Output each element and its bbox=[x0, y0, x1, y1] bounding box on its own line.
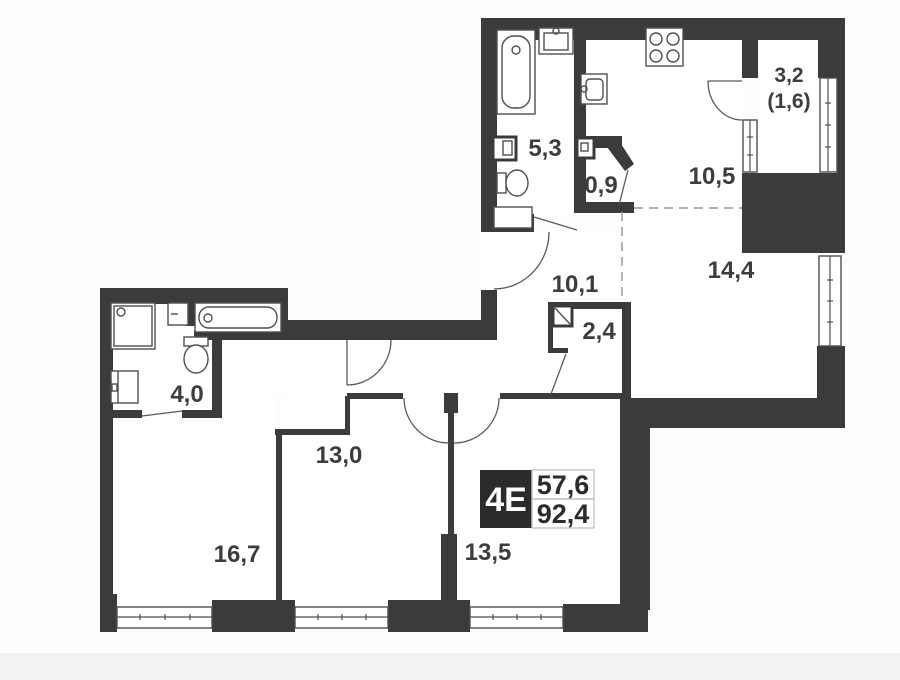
room-area-label-kitchen: 10,5 bbox=[689, 163, 736, 190]
wall bbox=[100, 288, 288, 304]
room-area-label-balcony: 3,2 bbox=[774, 64, 803, 87]
wall bbox=[100, 594, 117, 632]
wall bbox=[388, 600, 470, 632]
toilet-icon bbox=[184, 337, 208, 373]
wall bbox=[548, 348, 568, 353]
vent-shaft-icon bbox=[553, 306, 572, 326]
wall bbox=[275, 429, 350, 435]
wall bbox=[620, 398, 650, 610]
badge-upper-value: 57,6 bbox=[537, 470, 590, 500]
wall bbox=[622, 302, 631, 398]
window bbox=[820, 78, 837, 172]
washbasin-icon bbox=[168, 303, 188, 325]
wall bbox=[212, 340, 222, 418]
room-area-label-closet: 2,4 bbox=[582, 318, 616, 345]
wall bbox=[441, 534, 457, 604]
window bbox=[743, 120, 757, 172]
stove-icon bbox=[646, 28, 683, 66]
wall bbox=[481, 18, 497, 232]
vent-shaft-icon bbox=[493, 137, 516, 160]
wall bbox=[837, 40, 845, 192]
wall bbox=[347, 393, 403, 399]
wall bbox=[622, 398, 843, 428]
shower-tray-icon bbox=[111, 303, 155, 349]
toilet-icon bbox=[497, 170, 528, 196]
wall bbox=[112, 410, 142, 418]
window bbox=[117, 607, 212, 628]
window bbox=[295, 607, 388, 628]
room-area-label-bathroom-lower: 4,0 bbox=[170, 381, 203, 408]
vent-shaft-icon bbox=[577, 138, 594, 158]
badge-type-label: 4E bbox=[485, 481, 527, 519]
wall bbox=[448, 398, 454, 534]
wall bbox=[563, 604, 648, 632]
wall bbox=[742, 173, 845, 253]
unit-badge: 4E 57,6 92,4 bbox=[480, 470, 594, 529]
room-area-label-balcony-reduced: (1,6) bbox=[767, 90, 810, 113]
washing-machine-icon bbox=[111, 371, 138, 403]
room-area-label-living: 14,4 bbox=[708, 257, 755, 284]
room-area-label-room-167: 16,7 bbox=[214, 541, 261, 568]
bathtub-icon bbox=[195, 303, 281, 332]
wall bbox=[282, 320, 497, 340]
sink-icon bbox=[539, 28, 573, 54]
wall bbox=[500, 393, 622, 399]
wall bbox=[212, 600, 295, 632]
window bbox=[470, 607, 563, 628]
wall bbox=[345, 396, 350, 434]
badge-lower-value: 92,4 bbox=[537, 499, 590, 529]
room-area-label-wc: 0,9 bbox=[584, 172, 617, 199]
room-area-label-bathroom-upper: 5,3 bbox=[528, 135, 561, 162]
room-area-label-room-135: 13,5 bbox=[465, 539, 512, 566]
wall bbox=[742, 40, 758, 78]
wall bbox=[574, 202, 634, 213]
floorplan-drawing: 5,3 0,9 10,5 3,2 (1,6) 14,4 10,1 2,4 4,0… bbox=[0, 0, 900, 680]
kitchen-sink-icon bbox=[581, 74, 607, 104]
footer-band bbox=[0, 653, 900, 680]
wall bbox=[276, 432, 282, 604]
wall bbox=[182, 410, 222, 418]
room-area-label-hallway: 10,1 bbox=[552, 271, 599, 298]
floorplan-page: 5,3 0,9 10,5 3,2 (1,6) 14,4 10,1 2,4 4,0… bbox=[0, 0, 900, 680]
room-area-label-bedroom-middle: 13,0 bbox=[316, 442, 363, 469]
bathtub-icon bbox=[497, 30, 535, 114]
window bbox=[819, 256, 841, 346]
cabinet-icon bbox=[494, 207, 532, 228]
